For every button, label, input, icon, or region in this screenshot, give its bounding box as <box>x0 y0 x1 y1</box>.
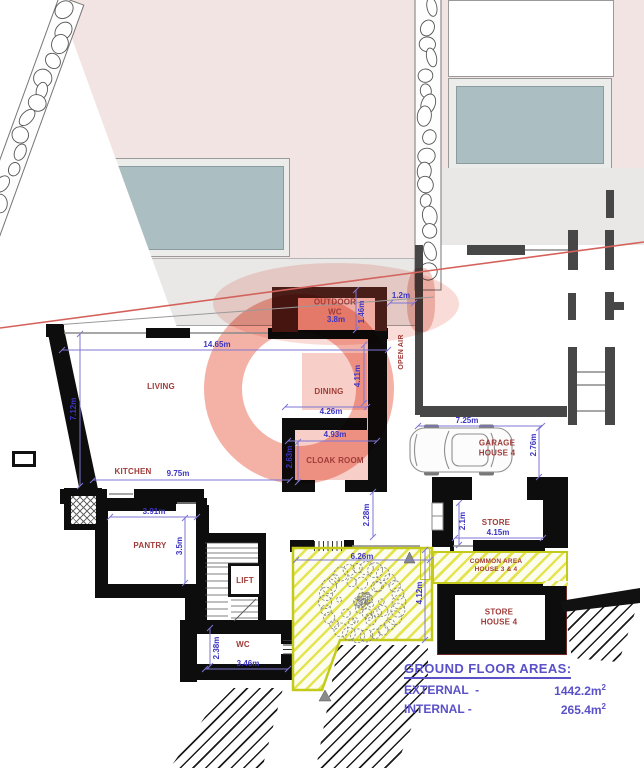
room-label: KITCHEN <box>115 467 152 477</box>
areas-title: GROUND FLOOR AREAS: <box>404 661 571 679</box>
dimension-label: 2.1m <box>459 512 467 530</box>
dimension-label: 2.76m <box>530 434 538 457</box>
dimension-label: 1.2m <box>392 292 410 300</box>
areas-summary: GROUND FLOOR AREAS: EXTERNAL - 1442.2m2 … <box>404 660 606 717</box>
room-label: STORE HOUSE 4 <box>481 607 518 626</box>
dimension-label: 9.75m <box>167 470 190 478</box>
room-label: COMMON AREA HOUSE 3 & 4 <box>470 558 523 574</box>
room-label: STORE <box>482 518 510 528</box>
dimension-label: 2.38m <box>213 637 221 660</box>
dimension-label: 3.8m <box>327 316 345 324</box>
dimension-label: 14.65m <box>203 341 230 349</box>
dimension-label: 4.11m <box>354 365 362 387</box>
areas-row-external: EXTERNAL - 1442.2m2 <box>404 683 606 698</box>
areas-value-external: 1442.2m2 <box>554 683 606 698</box>
dimension-label: 2.63m <box>286 446 294 469</box>
dimension-label: 2.28m <box>363 504 371 527</box>
areas-label-internal: INTERNAL - <box>404 702 472 717</box>
areas-label-external: EXTERNAL - <box>404 683 479 698</box>
room-label: DINING <box>314 387 343 397</box>
dimension-label: 3.91m <box>143 508 166 516</box>
dimension-label: 3.46m <box>237 660 260 668</box>
room-label: LIFT <box>236 576 254 586</box>
dimension-label: 3.5m <box>176 537 184 555</box>
room-label: PANTRY <box>133 541 166 551</box>
dimension-label: 4.12m <box>416 582 424 605</box>
room-label: LIVING <box>147 382 175 392</box>
dimension-label: 1.46m <box>358 301 366 324</box>
dimension-label: 6.26m <box>351 553 374 561</box>
floor-plan-canvas: LIVINGKITCHENOUTDOOR WCDININGCLOAK ROOMG… <box>0 0 644 768</box>
room-label: CLOAK ROOM <box>306 456 364 466</box>
dimension-label: 4.26m <box>320 408 343 416</box>
labels-layer: LIVINGKITCHENOUTDOOR WCDININGCLOAK ROOMG… <box>0 0 644 768</box>
room-label: WC <box>236 640 250 650</box>
room-label: OPEN AIR <box>398 334 406 369</box>
room-label: GARAGE HOUSE 4 <box>479 438 516 457</box>
areas-value-internal: 265.4m2 <box>561 702 606 717</box>
dimension-label: 7.25m <box>456 417 479 425</box>
room-label: OUTDOOR WC <box>314 297 356 316</box>
dimension-label: 7.12m <box>70 398 78 421</box>
dimension-label: 4.15m <box>487 529 510 537</box>
dimension-label: 4.93m <box>324 431 347 439</box>
areas-row-internal: INTERNAL - 265.4m2 <box>404 702 606 717</box>
